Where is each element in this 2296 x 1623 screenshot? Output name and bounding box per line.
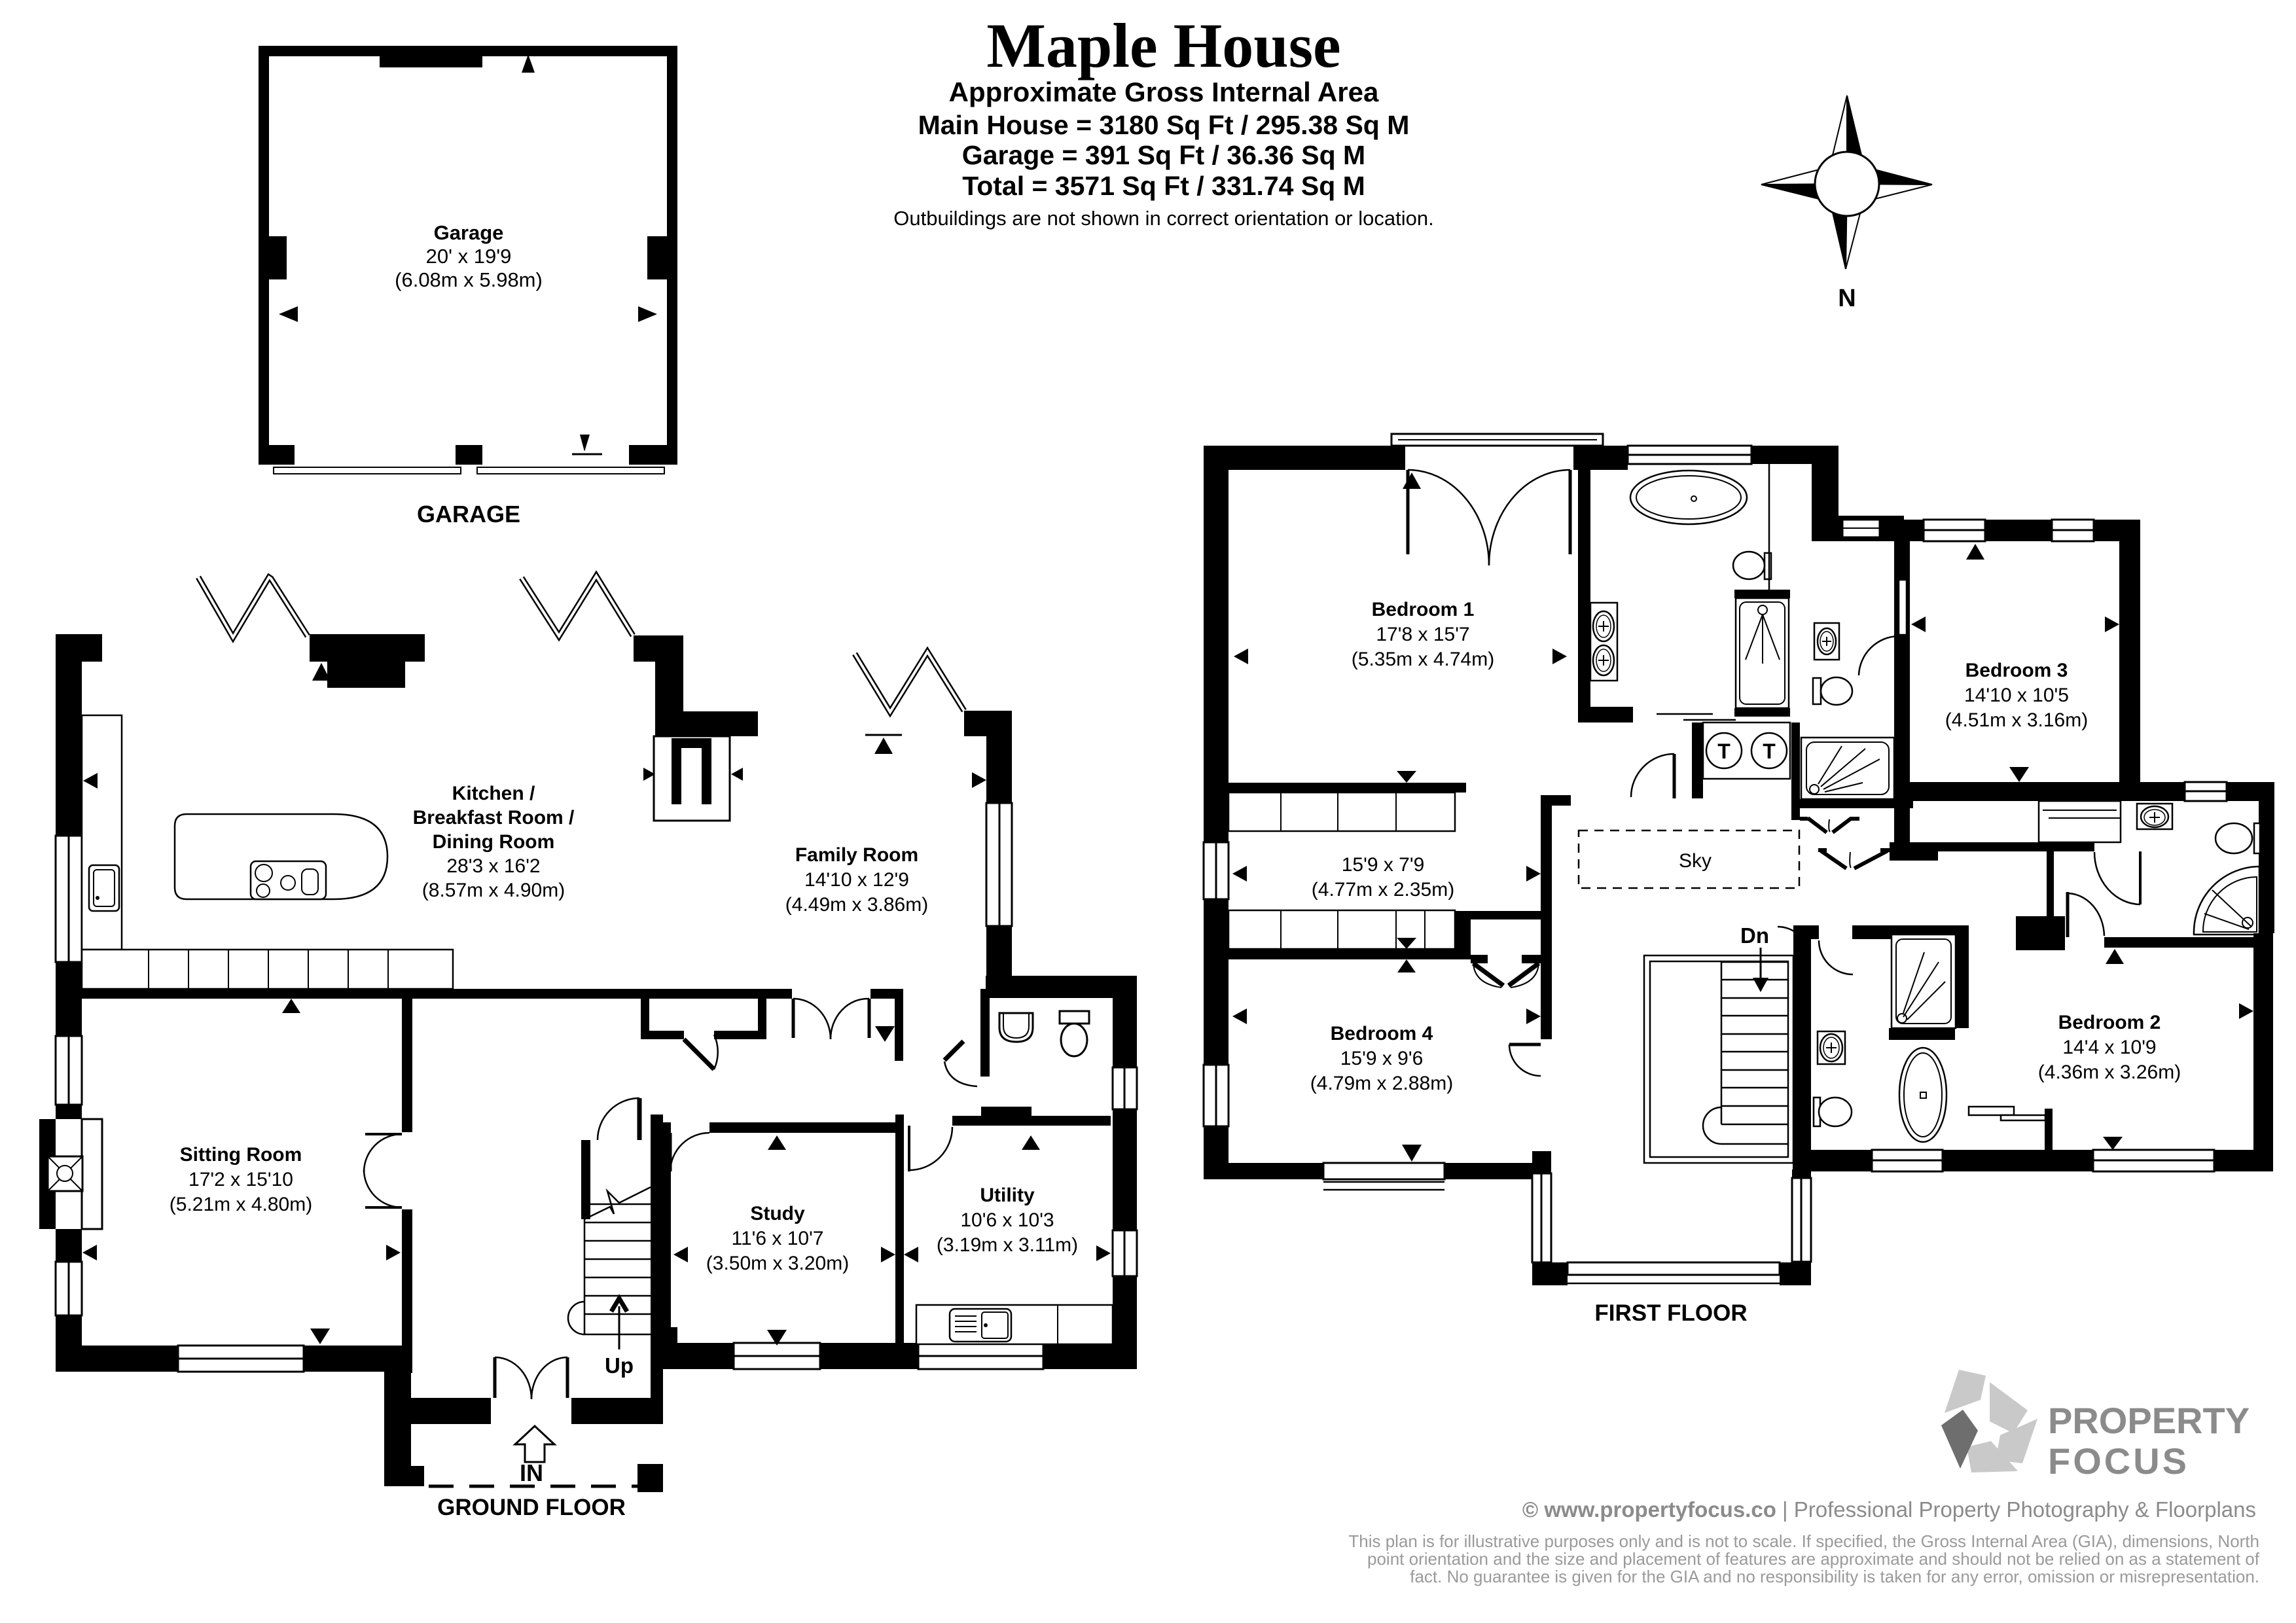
svg-text:14'10 x 12'9: 14'10 x 12'9 xyxy=(804,869,909,891)
svg-text:Bedroom 3: Bedroom 3 xyxy=(1965,660,2068,681)
svg-text:28'3 x 16'2: 28'3 x 16'2 xyxy=(446,855,540,877)
svg-text:GROUND FLOOR: GROUND FLOOR xyxy=(437,1495,626,1520)
svg-text:GARAGE: GARAGE xyxy=(417,501,520,527)
svg-text:(6.08m x 5.98m): (6.08m x 5.98m) xyxy=(395,268,543,291)
svg-text:11'6 x 10'7: 11'6 x 10'7 xyxy=(731,1228,823,1249)
svg-text:N: N xyxy=(1838,285,1856,312)
svg-text:FOCUS: FOCUS xyxy=(2048,1440,2189,1482)
svg-text:14'10 x 10'5: 14'10 x 10'5 xyxy=(1964,685,2069,706)
svg-text:17'2 x 15'10: 17'2 x 15'10 xyxy=(188,1169,293,1190)
svg-text:15'9 x 7'9: 15'9 x 7'9 xyxy=(1342,854,1425,876)
svg-text:(4.51m x 3.16m): (4.51m x 3.16m) xyxy=(1945,709,2088,731)
svg-text:point orientation and the size: point orientation and the size and place… xyxy=(1367,1549,2260,1569)
svg-text:(5.21m x 4.80m): (5.21m x 4.80m) xyxy=(170,1194,312,1215)
svg-text:(4.77m x 2.35m): (4.77m x 2.35m) xyxy=(1312,879,1454,901)
svg-text:14'4 x 10'9: 14'4 x 10'9 xyxy=(2062,1037,2156,1058)
svg-text:Study: Study xyxy=(750,1203,805,1224)
svg-text:10'6 x 10'3: 10'6 x 10'3 xyxy=(960,1209,1054,1231)
svg-text:IN: IN xyxy=(520,1459,543,1486)
svg-text:Dn: Dn xyxy=(1740,923,1769,948)
svg-text:15'9 x 9'6: 15'9 x 9'6 xyxy=(1340,1048,1424,1069)
svg-text:Kitchen /: Kitchen / xyxy=(452,783,535,804)
svg-text:Sky: Sky xyxy=(1679,850,1712,872)
svg-text:PROPERTY: PROPERTY xyxy=(2048,1400,2250,1441)
svg-text:Total = 3571 Sq Ft / 331.74 Sq: Total = 3571 Sq Ft / 331.74 Sq M xyxy=(962,171,1365,201)
svg-text:Bedroom 2: Bedroom 2 xyxy=(2058,1012,2161,1033)
svg-text:(3.50m x 3.20m): (3.50m x 3.20m) xyxy=(706,1253,849,1274)
svg-text:Dining Room: Dining Room xyxy=(433,831,555,853)
svg-text:Garage = 391 Sq Ft / 36.36 Sq: Garage = 391 Sq Ft / 36.36 Sq M xyxy=(962,140,1365,170)
svg-text:Approximate Gross Internal Are: Approximate Gross Internal Area xyxy=(949,77,1379,107)
svg-text:Main House = 3180 Sq Ft / 295.: Main House = 3180 Sq Ft / 295.38 Sq M xyxy=(918,110,1410,140)
svg-text:(8.57m x 4.90m): (8.57m x 4.90m) xyxy=(422,880,565,901)
svg-text:(4.49m x 3.86m): (4.49m x 3.86m) xyxy=(785,894,928,916)
svg-text:This plan is for illustrative: This plan is for illustrative purposes o… xyxy=(1348,1531,2259,1551)
svg-text:Garage: Garage xyxy=(434,221,504,244)
svg-text:Outbuildings are not shown in: Outbuildings are not shown in correct or… xyxy=(893,207,1433,230)
svg-text:Utility: Utility xyxy=(980,1185,1035,1206)
svg-text:Bedroom 4: Bedroom 4 xyxy=(1331,1023,1433,1044)
svg-text:© www.propertyfocus.co | Profe: © www.propertyfocus.co | Professional Pr… xyxy=(1522,1497,2256,1522)
svg-text:(5.35m x 4.74m): (5.35m x 4.74m) xyxy=(1352,649,1494,670)
svg-text:Breakfast Room /: Breakfast Room / xyxy=(413,807,575,829)
svg-text:T: T xyxy=(1717,740,1731,763)
svg-text:fact. No guarantee is given fo: fact. No guarantee is given for the GIA … xyxy=(1410,1567,2259,1586)
svg-text:(4.36m x 3.26m): (4.36m x 3.26m) xyxy=(2038,1061,2181,1083)
svg-text:Bedroom 1: Bedroom 1 xyxy=(1372,599,1475,620)
svg-text:Family Room: Family Room xyxy=(795,844,918,866)
svg-text:Sitting Room: Sitting Room xyxy=(180,1144,302,1166)
svg-text:Up: Up xyxy=(605,1353,634,1378)
svg-text:(3.19m x 3.11m): (3.19m x 3.11m) xyxy=(937,1234,1078,1256)
svg-text:(4.79m x 2.88m): (4.79m x 2.88m) xyxy=(1310,1073,1453,1094)
svg-text:T: T xyxy=(1763,740,1776,763)
svg-text:17'8 x 15'7: 17'8 x 15'7 xyxy=(1376,624,1469,645)
svg-text:Maple House: Maple House xyxy=(986,10,1340,80)
svg-text:20' x 19'9: 20' x 19'9 xyxy=(426,245,512,268)
svg-text:FIRST FLOOR: FIRST FLOOR xyxy=(1594,1300,1747,1326)
